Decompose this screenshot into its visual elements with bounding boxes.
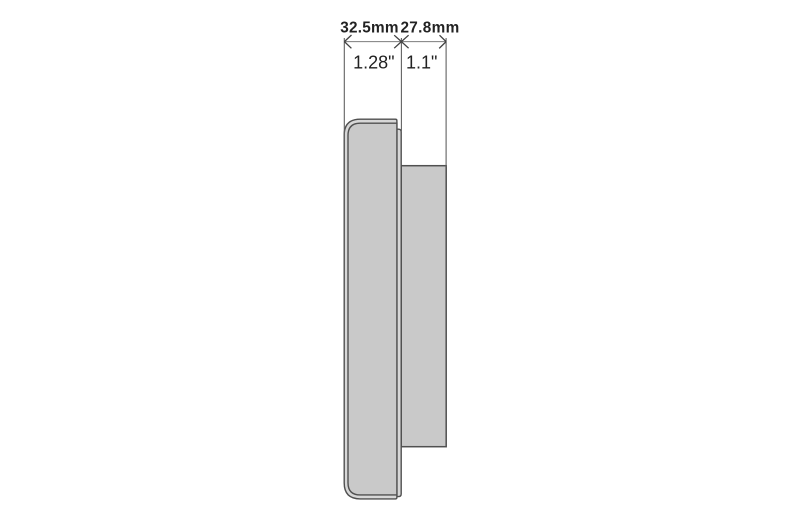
svg-text:1.1": 1.1": [406, 53, 437, 73]
svg-text:27.8mm: 27.8mm: [400, 20, 459, 37]
svg-text:1.28": 1.28": [353, 53, 394, 73]
svg-text:32.5mm: 32.5mm: [340, 20, 398, 37]
